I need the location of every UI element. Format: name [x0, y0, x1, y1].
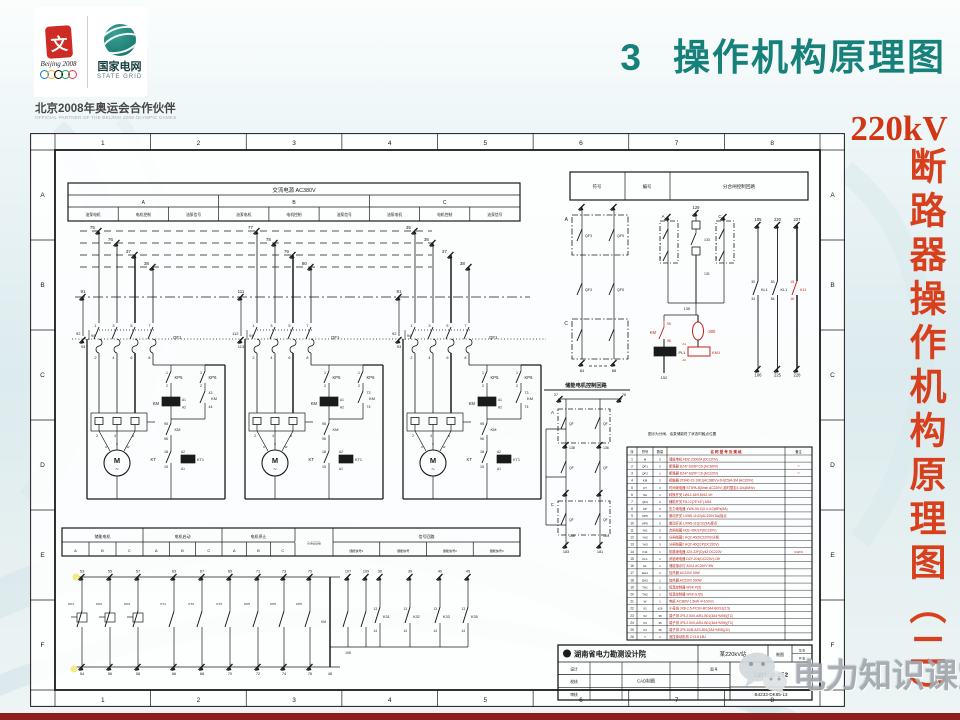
svg-text:K11: K11 [642, 550, 647, 554]
svg-text:2: 2 [96, 434, 98, 438]
svg-text:KT3: KT3 [216, 602, 222, 606]
svg-text:4: 4 [428, 356, 430, 360]
svg-text:107: 107 [345, 570, 351, 574]
svg-text:37: 37 [442, 249, 448, 254]
svg-text:225: 225 [774, 373, 782, 378]
svg-text:QF1: QF1 [173, 335, 182, 340]
svg-text:D: D [830, 462, 835, 469]
svg-text:96: 96 [322, 437, 326, 441]
svg-text:KM: KM [333, 427, 339, 432]
svg-text:交流电源 AC380V: 交流电源 AC380V [272, 186, 316, 194]
title-text: 操作机构原理图 [673, 37, 946, 78]
svg-text:38: 38 [460, 261, 466, 266]
svg-text:符号: 符号 [642, 449, 648, 454]
svg-text:KP5: KP5 [296, 602, 302, 606]
svg-text:113: 113 [238, 344, 245, 349]
svg-text:油泵信号: 油泵信号 [337, 212, 352, 217]
svg-text:V: V [274, 443, 276, 447]
svg-text:8: 8 [148, 356, 150, 360]
svg-text:~: ~ [431, 467, 435, 473]
svg-text:B: B [292, 200, 296, 206]
svg-text:B: B [40, 282, 44, 289]
svg-text:2: 2 [324, 384, 326, 388]
svg-text:QF: QF [569, 466, 574, 470]
svg-text:1: 1 [659, 493, 661, 497]
svg-text:QF2: QF2 [642, 472, 648, 476]
svg-text:E: E [830, 552, 835, 559]
svg-text:2: 2 [197, 697, 201, 704]
svg-text:储能电机 HDZ-23002A (DC220V): 储能电机 HDZ-23002A (DC220V) [669, 456, 718, 461]
svg-text:6: 6 [446, 356, 448, 360]
svg-text:CAD制图: CAD制图 [637, 678, 656, 685]
svg-text:KM: KM [175, 427, 181, 432]
svg-text:5: 5 [130, 324, 132, 328]
svg-text:X2: X2 [643, 614, 647, 618]
svg-text:F: F [831, 642, 835, 649]
svg-text:14: 14 [630, 550, 634, 554]
svg-text:3: 3 [659, 479, 661, 483]
svg-text:V: V [432, 443, 434, 447]
svg-text:U: U [263, 445, 265, 449]
svg-text:75: 75 [308, 570, 312, 574]
svg-text:KT1: KT1 [355, 458, 362, 462]
svg-text:W: W [443, 445, 446, 449]
svg-text:73: 73 [367, 391, 371, 395]
svg-text:KT2: KT2 [188, 602, 194, 606]
svg-text:63: 63 [172, 570, 176, 574]
svg-text:40: 40 [438, 570, 442, 574]
svg-text:电机控制: 电机控制 [136, 212, 151, 217]
svg-text:69: 69 [228, 570, 232, 574]
svg-text:91: 91 [397, 289, 402, 294]
svg-text:A1: A1 [182, 398, 186, 402]
svg-text:湖南省电力勘测设计院: 湖南省电力勘测设计院 [574, 650, 647, 659]
svg-text:1: 1 [358, 371, 360, 375]
svg-text:2: 2 [94, 356, 96, 360]
svg-text:13: 13 [373, 607, 377, 611]
svg-text:A2: A2 [682, 358, 686, 362]
svg-text:1: 1 [94, 324, 96, 328]
svg-text:1: 1 [482, 371, 484, 375]
svg-text:压力继电器 YWK-50-C(0.4-4.0)MPa(5A): 压力继电器 YWK-50-C(0.4-4.0)MPa(5A) [669, 506, 728, 511]
svg-text:W: W [285, 445, 288, 449]
svg-text:KM: KM [321, 620, 326, 624]
svg-text:加热器 AC220V 500W: 加热器 AC220V 500W [669, 577, 703, 582]
svg-text:1: 1 [101, 140, 105, 147]
svg-text:**: ** [797, 472, 800, 476]
svg-text:7: 7 [675, 140, 679, 147]
svg-text:断路器 DZ47-63/2P C6 (AC220V): 断路器 DZ47-63/2P C6 (AC220V) [669, 471, 718, 476]
svg-text:接触器 3TB40-22-10E1(AC380V)+2H(C: 接触器 3TB40-22-10E1(AC380V)+2H(C5)A-3M (AC… [669, 478, 753, 483]
svg-text:3: 3 [292, 697, 296, 704]
svg-text:QF3: QF3 [585, 234, 592, 238]
svg-text:72: 72 [256, 672, 260, 676]
svg-text:2: 2 [197, 140, 201, 147]
svg-text:2: 2 [410, 356, 412, 360]
svg-text:M: M [272, 456, 278, 465]
svg-text:7: 7 [148, 324, 150, 328]
svg-text:44: 44 [209, 405, 213, 409]
svg-text:储能电机控制回路: 储能电机控制回路 [565, 381, 607, 389]
svg-text:KT: KT [467, 457, 473, 462]
svg-text:70: 70 [228, 672, 232, 676]
svg-text:5: 5 [484, 697, 488, 704]
svg-text:35: 35 [658, 628, 662, 632]
svg-text:74: 74 [367, 405, 371, 409]
svg-text:微动开关 LXW5-11G2(AC220V,5A)接点: 微动开关 LXW5-11G2(AC220V,5A)接点 [669, 513, 727, 518]
svg-text:QF3: QF3 [585, 288, 592, 292]
svg-text:2: 2 [358, 384, 360, 388]
svg-text:19: 19 [630, 585, 634, 589]
svg-text:2: 2 [516, 384, 518, 388]
svg-text:16: 16 [790, 297, 794, 301]
svg-text:2: 2 [412, 434, 414, 438]
svg-text:KP5: KP5 [333, 375, 342, 380]
svg-text:108: 108 [345, 651, 351, 655]
svg-text:93: 93 [397, 344, 402, 349]
svg-text:分闸线圈1 HQ2-40(DC220V)/分相: 分闸线圈1 HQ2-40(DC220V)/分相 [669, 535, 719, 540]
svg-text:6: 6 [130, 356, 132, 360]
svg-text:KP5: KP5 [270, 602, 276, 606]
svg-text:端子排 JF5-2.5X0-A/B1-B01(3A4+M06: 端子排 JF5-2.5X0-A/B1-B01(3A4+M06)(TC) [669, 613, 733, 618]
svg-text:油泵信号: 油泵信号 [186, 212, 201, 217]
beijing2008-logo: 文 Beijing 2008 [34, 26, 83, 79]
svg-text:PL1: PL1 [679, 351, 686, 355]
svg-text:35: 35 [658, 621, 662, 625]
svg-text:KM1: KM1 [712, 350, 721, 355]
svg-text:66: 66 [172, 672, 176, 676]
svg-text:K33: K33 [443, 615, 450, 619]
svg-text:13: 13 [403, 607, 407, 611]
svg-text:名 称 型 号 及 规 格: 名 称 型 号 及 规 格 [710, 449, 742, 454]
svg-text:恒温控制器 WSK-SJ(5): 恒温控制器 WSK-SJ(5) [669, 592, 703, 597]
svg-text:96: 96 [480, 437, 484, 441]
svg-text:8: 8 [631, 507, 633, 511]
svg-text:14: 14 [373, 629, 377, 633]
svg-text:13: 13 [630, 543, 634, 547]
state-grid-globe-icon [104, 24, 136, 56]
svg-text:QF: QF [603, 518, 608, 522]
svg-text:8: 8 [770, 140, 774, 147]
svg-text:A2: A2 [340, 406, 344, 410]
svg-text:21: 21 [630, 600, 634, 604]
svg-text:V: V [116, 443, 118, 447]
svg-text:A: A [142, 200, 146, 206]
svg-text:储能信号1: 储能信号1 [349, 548, 363, 553]
svg-text:5: 5 [288, 324, 290, 328]
svg-text:微动开关 LXW5-11Q/1C(5A)接点: 微动开关 LXW5-11Q/1C(5A)接点 [669, 520, 718, 525]
svg-text:QF: QF [603, 422, 608, 426]
svg-text:106: 106 [755, 373, 763, 378]
svg-text:152: 152 [661, 375, 668, 380]
svg-text:220: 220 [774, 217, 782, 222]
svg-text:28: 28 [622, 393, 626, 397]
svg-text:35: 35 [658, 614, 662, 618]
svg-text:4: 4 [430, 434, 432, 438]
svg-text:KP5: KP5 [491, 375, 500, 380]
svg-text:校核: 校核 [570, 679, 578, 684]
svg-text:56: 56 [108, 672, 112, 676]
partner-text-en: OFFICIAL PARTNER OF THE BEIJING 2008 OLY… [35, 115, 176, 120]
svg-text:6: 6 [579, 140, 583, 147]
svg-text:B: B [257, 548, 260, 553]
svg-text:67: 67 [200, 570, 204, 574]
svg-text:1: 1 [659, 571, 661, 575]
svg-text:时间继电器 ST3PA-B(5min,AC220V) 延时: 时间继电器 ST3PA-B(5min,AC220V) 延时整定4-10s(50H… [669, 485, 755, 490]
svg-text:1: 1 [659, 550, 661, 554]
svg-text:136: 136 [603, 446, 609, 450]
svg-text:4: 4 [114, 434, 116, 438]
svg-text:98: 98 [667, 339, 671, 343]
svg-text:109: 109 [363, 570, 369, 574]
svg-text:15: 15 [480, 465, 484, 469]
svg-text:5: 5 [446, 324, 448, 328]
svg-text:4: 4 [272, 434, 274, 438]
svg-text:KM: KM [369, 396, 375, 401]
svg-text:11: 11 [630, 528, 634, 532]
svg-text:B: B [101, 548, 104, 553]
svg-text:74: 74 [282, 672, 286, 676]
svg-text:80: 80 [302, 261, 308, 266]
svg-text:QF3: QF3 [642, 500, 648, 504]
svg-text:A2: A2 [339, 450, 343, 454]
svg-text:1: 1 [659, 585, 661, 589]
svg-text:闭锁继电器 DZY-204(DC220V)-1W: 闭锁继电器 DZY-204(DC220V)-1W [669, 556, 721, 561]
svg-text:73: 73 [525, 391, 529, 395]
svg-text:KT1: KT1 [160, 602, 166, 606]
svg-text:20: 20 [630, 593, 634, 597]
svg-text:QF1: QF1 [489, 335, 498, 340]
svg-text:防跳继电器 JZX-22F(D)/4Z DC220V: 防跳继电器 JZX-22F(D)/4Z DC220V [669, 549, 723, 554]
svg-text:18: 18 [480, 450, 484, 454]
svg-text:26: 26 [630, 635, 634, 639]
svg-text:M: M [644, 457, 647, 461]
svg-text:KP6: KP6 [367, 375, 376, 380]
svg-text:油泵信号: 油泵信号 [487, 212, 502, 217]
svg-text:3: 3 [292, 140, 296, 147]
svg-text:GWF6: GWF6 [794, 550, 803, 554]
svg-text:37: 37 [126, 249, 132, 254]
svg-text:27: 27 [554, 393, 558, 397]
svg-text:131: 131 [704, 272, 710, 276]
svg-text:KM: KM [469, 401, 476, 406]
svg-text:35: 35 [406, 225, 412, 230]
svg-text:图示为分闸、油泵储能终了状态时触点位置: 图示为分闸、油泵储能终了状态时触点位置 [648, 431, 717, 436]
state-grid-en: STATE GRID [97, 74, 142, 80]
svg-text:1: 1 [200, 371, 202, 375]
svg-text:A: A [661, 214, 664, 219]
svg-text:A2: A2 [497, 450, 501, 454]
svg-text:75: 75 [90, 225, 96, 230]
svg-text:1: 1 [166, 371, 168, 375]
svg-text:K32: K32 [413, 615, 420, 619]
svg-text:KP: KP [643, 507, 647, 511]
svg-text:23: 23 [630, 614, 634, 618]
svg-text:A: A [74, 548, 77, 553]
svg-text:13: 13 [461, 607, 465, 611]
svg-text:4: 4 [388, 140, 392, 147]
svg-text:18: 18 [630, 578, 634, 582]
svg-text:KL1: KL1 [761, 288, 768, 292]
svg-text:7: 7 [306, 324, 308, 328]
svg-text:3: 3 [659, 543, 661, 547]
svg-text:电缆 AC380V 1.5kW 4×10/mm: 电缆 AC380V 1.5kW 4×10/mm [669, 599, 714, 604]
svg-text:C: C [564, 321, 568, 327]
svg-text:储能信号: 储能信号 [397, 548, 409, 553]
svg-text:36: 36 [378, 570, 382, 574]
svg-text:TH2: TH2 [642, 593, 648, 597]
svg-text:KP6: KP6 [525, 375, 534, 380]
svg-text:端子排 JF5-10/B-A2S-B01(2A4+M08)(: 端子排 JF5-10/B-A2S-B01(2A4+M08)(JC) [669, 627, 730, 632]
svg-text:1: 1 [410, 324, 412, 328]
svg-text:93: 93 [81, 344, 86, 349]
svg-text:6: 6 [288, 356, 290, 360]
svg-text:SA: SA [643, 493, 647, 497]
svg-text:C: C [830, 372, 835, 379]
svg-text:K11: K11 [800, 288, 806, 292]
svg-text:133: 133 [704, 238, 710, 242]
svg-text:W: W [127, 445, 130, 449]
side-title-kv: 220kV [839, 109, 959, 149]
svg-text:KM: KM [650, 330, 657, 335]
beijing-emblem-icon: 文 [44, 25, 72, 59]
svg-text:14: 14 [433, 629, 437, 633]
svg-text:2: 2 [252, 356, 254, 360]
svg-text:数量: 数量 [657, 449, 664, 454]
svg-text:A1: A1 [340, 398, 344, 402]
svg-text:A: A [830, 192, 835, 199]
svg-text:KL1: KL1 [781, 288, 788, 292]
svg-text:92: 92 [76, 331, 81, 336]
svg-text:3: 3 [659, 507, 661, 511]
svg-text:KP5: KP5 [642, 514, 648, 518]
svg-text:95: 95 [480, 422, 484, 426]
svg-text:K31: K31 [383, 615, 390, 619]
svg-text:30: 30 [751, 280, 755, 284]
svg-text:分合闸控制回路: 分合闸控制回路 [723, 183, 756, 190]
svg-text:54: 54 [80, 672, 84, 676]
svg-text:2: 2 [166, 384, 168, 388]
svg-text:8: 8 [464, 356, 466, 360]
svg-text:13: 13 [433, 607, 437, 611]
svg-text:储能信号2: 储能信号2 [443, 548, 457, 553]
svg-text:129: 129 [693, 205, 701, 210]
schematic-sheet: 1122334455667788AABBCCDDEEFF交流电源 AC380VA… [30, 133, 845, 707]
svg-text:X3: X3 [643, 621, 647, 625]
svg-text:91: 91 [81, 289, 86, 294]
svg-text:KM: KM [643, 479, 648, 483]
svg-text:18: 18 [164, 450, 168, 454]
svg-text:A1: A1 [682, 342, 686, 346]
svg-text:57: 57 [136, 570, 140, 574]
svg-text:QF1: QF1 [331, 335, 340, 340]
svg-text:W: W [644, 600, 647, 604]
svg-text:B: B [830, 282, 834, 289]
svg-text:序: 序 [630, 449, 634, 454]
svg-text:A2: A2 [181, 450, 185, 454]
svg-text:58: 58 [136, 672, 140, 676]
svg-text:3: 3 [659, 514, 661, 518]
svg-text:12: 12 [630, 536, 634, 540]
svg-text:18: 18 [322, 450, 326, 454]
svg-text:KM: KM [211, 396, 217, 401]
svg-text:C: C [443, 200, 447, 206]
svg-text:C: C [40, 372, 45, 379]
svg-text:168: 168 [569, 534, 575, 538]
svg-text:73: 73 [282, 570, 286, 574]
svg-text:C: C [551, 502, 555, 507]
beijing2008-script: Beijing 2008 [41, 60, 77, 68]
svg-text:A: A [233, 548, 236, 553]
svg-text:55: 55 [108, 570, 112, 574]
svg-text:112: 112 [232, 331, 239, 336]
svg-text:138: 138 [569, 446, 575, 450]
svg-text:**: ** [797, 464, 800, 468]
svg-text:2: 2 [200, 384, 202, 388]
svg-text:YA3: YA3 [642, 543, 648, 547]
svg-text:审核: 审核 [570, 692, 578, 697]
state-grid-logo: 国家电网 STATE GRID [92, 24, 147, 80]
svg-text:3: 3 [659, 486, 661, 490]
svg-text:KT: KT [643, 486, 647, 490]
svg-text:3: 3 [270, 324, 272, 328]
svg-text:分闸线圈2 HQ2-40Q/1P(DC220V): 分闸线圈2 HQ2-40Q/1P(DC220V) [669, 542, 719, 547]
svg-text:14: 14 [461, 629, 465, 633]
svg-text:加热器 AC220V 50W: 加热器 AC220V 50W [669, 570, 701, 575]
schematic-canvas: 1122334455667788AABBCCDDEEFF交流电源 AC380VA… [30, 133, 845, 707]
svg-text:QF: QF [569, 422, 574, 426]
svg-text:4: 4 [270, 356, 272, 360]
svg-text:95: 95 [322, 422, 326, 426]
svg-text:C: C [207, 548, 210, 553]
svg-text:油泵电机: 油泵电机 [387, 212, 402, 217]
svg-text:43: 43 [209, 391, 213, 395]
svg-text:95: 95 [667, 322, 671, 326]
logo-divider [87, 16, 88, 88]
svg-text:84: 84 [580, 368, 585, 373]
svg-text:~: ~ [115, 467, 119, 473]
svg-text:9: 9 [631, 514, 633, 518]
partner-text-cn: 北京2008年奥运会合作伙伴 [35, 100, 176, 116]
svg-text:7: 7 [631, 500, 633, 504]
partner-logo-card: 文 Beijing 2008 国家电网 STATE GRID [34, 7, 147, 97]
svg-text:34: 34 [751, 297, 755, 301]
svg-text:A1: A1 [497, 467, 501, 471]
svg-text:电机控制: 电机控制 [286, 212, 301, 217]
svg-text:3: 3 [659, 464, 661, 468]
svg-text:合闸线圈 HQ2-40K/1P(DC220V): 合闸线圈 HQ2-40K/1P(DC220V) [669, 527, 716, 532]
svg-text:10: 10 [630, 521, 634, 525]
svg-text:A: A [40, 192, 45, 199]
svg-text:5: 5 [631, 486, 633, 490]
svg-text:M: M [114, 456, 120, 465]
svg-text:45: 45 [466, 570, 470, 574]
svg-text:79: 79 [284, 249, 290, 254]
svg-text:1: 1 [252, 324, 254, 328]
watermark-text: 电力知识课堂 [793, 649, 960, 697]
svg-text:X1: X1 [643, 607, 647, 611]
svg-text:KP3: KP3 [124, 602, 130, 606]
svg-text:48: 48 [328, 672, 332, 676]
svg-text:22: 22 [630, 607, 634, 611]
svg-text:6: 6 [631, 493, 633, 497]
svg-text:EH2: EH2 [642, 578, 648, 582]
svg-text:96: 96 [164, 437, 168, 441]
svg-text:181: 181 [597, 550, 603, 554]
svg-text:A1: A1 [498, 398, 502, 402]
svg-text:~: ~ [273, 467, 277, 473]
svg-text:84: 84 [771, 297, 775, 301]
